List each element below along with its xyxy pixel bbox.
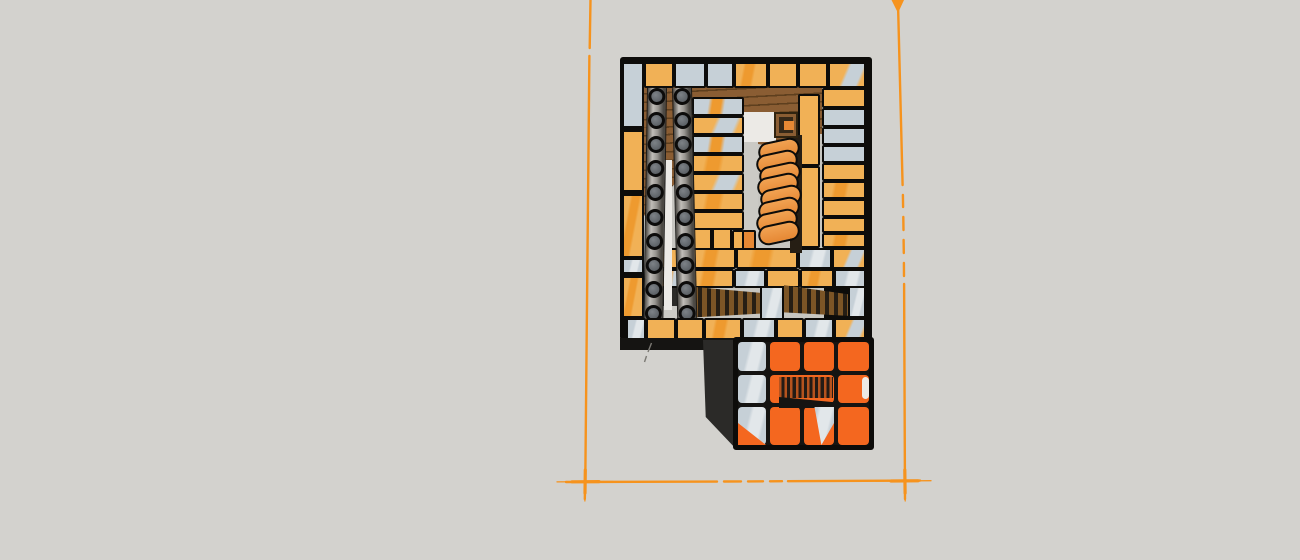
guide-line-bottom[interactable] — [566, 481, 920, 482]
guide-line-right[interactable] — [898, 3, 905, 499]
model-viewport[interactable] — [0, 0, 1300, 560]
guide-line-left[interactable] — [585, 0, 591, 499]
construction-guides — [0, 0, 1300, 560]
guide-arrow-top-right — [892, 0, 905, 13]
guide-point-right[interactable] — [876, 461, 931, 501]
pencil-mark — [645, 343, 652, 362]
